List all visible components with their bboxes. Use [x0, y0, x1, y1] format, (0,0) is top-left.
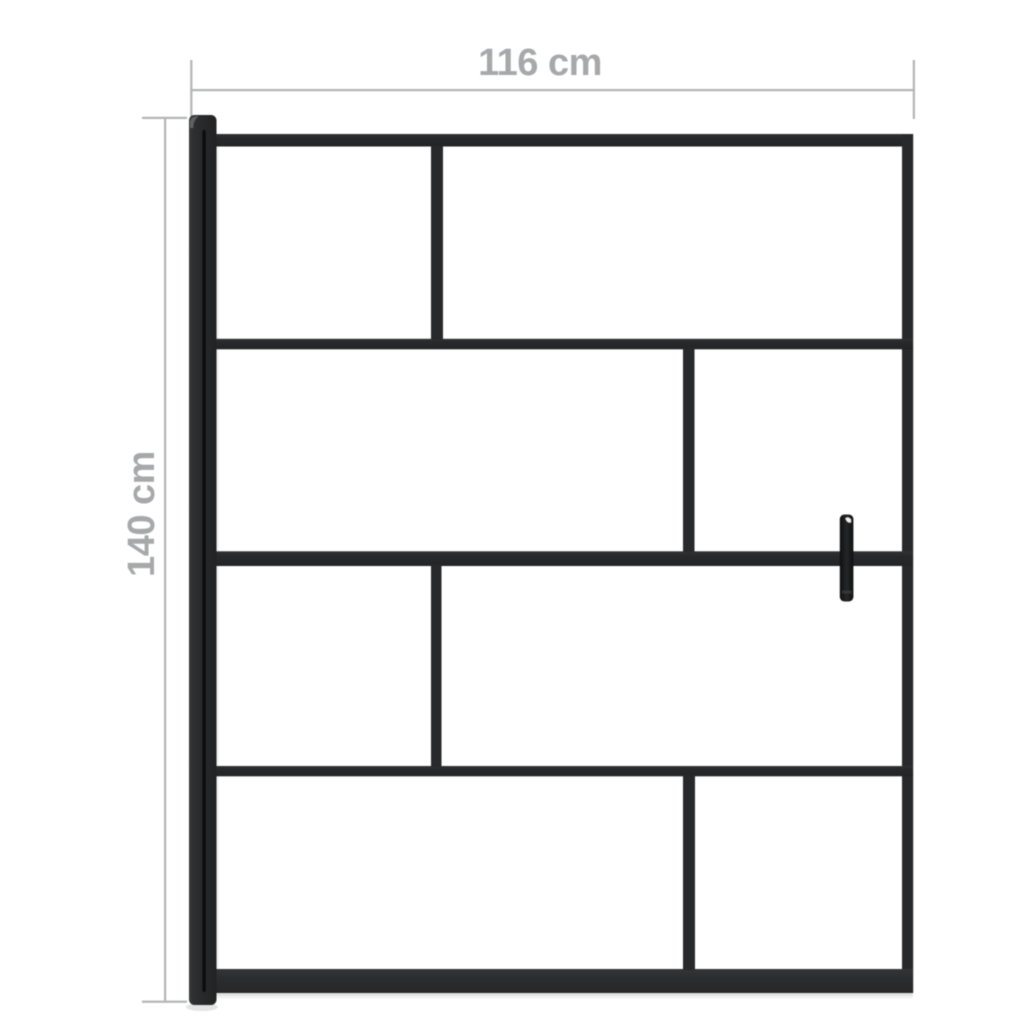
- svg-text:116 cm: 116 cm: [478, 42, 602, 84]
- svg-text:140 cm: 140 cm: [121, 451, 163, 577]
